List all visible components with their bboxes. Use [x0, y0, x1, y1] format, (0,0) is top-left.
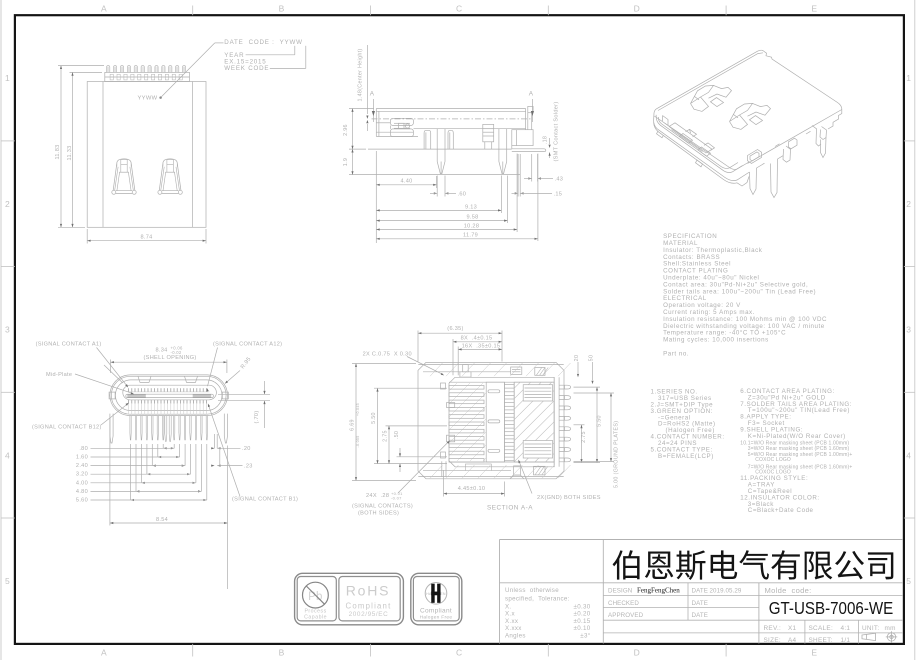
- svg-text:2.40: 2.40: [76, 463, 88, 469]
- svg-text:5: 5: [5, 576, 10, 586]
- svg-text:E: E: [811, 4, 817, 14]
- svg-text:4.00: 4.00: [76, 480, 88, 486]
- svg-text:.23: .23: [244, 464, 253, 470]
- svg-text:C=Black+Date Code: C=Black+Date Code: [748, 507, 814, 514]
- svg-text:COXOC LOGO: COXOC LOGO: [755, 457, 791, 463]
- svg-text:Capable: Capable: [304, 615, 327, 621]
- svg-text:4: 4: [5, 450, 10, 460]
- svg-text:D: D: [634, 4, 640, 14]
- svg-text:8.74: 8.74: [140, 235, 152, 241]
- svg-text:8.34: 8.34: [156, 348, 168, 354]
- svg-text:5.60: 5.60: [76, 498, 88, 504]
- svg-text:4:1: 4:1: [841, 625, 851, 632]
- svg-text:(.70): (.70): [254, 410, 260, 423]
- svg-text:1.48(Center Height): 1.48(Center Height): [358, 48, 364, 101]
- svg-text:50: 50: [589, 355, 595, 362]
- svg-text:(SIGNAL CONTACT A12): (SIGNAL CONTACT A12): [213, 342, 282, 348]
- svg-text:A: A: [529, 91, 534, 98]
- svg-text:Molde code:: Molde code:: [765, 586, 812, 595]
- svg-text:(SIGNAL CONTACT B1): (SIGNAL CONTACT B1): [232, 497, 298, 503]
- svg-text:2X(GND) BOTH SIDES: 2X(GND) BOTH SIDES: [537, 495, 601, 501]
- svg-text:X.: X.: [505, 603, 511, 610]
- svg-text:1.9: 1.9: [343, 158, 349, 166]
- svg-text:.43: .43: [555, 177, 564, 183]
- svg-text:DATE: DATE: [692, 588, 708, 595]
- svg-text:11.83: 11.83: [55, 144, 61, 159]
- svg-text:4: 4: [906, 450, 911, 460]
- svg-text:FengFengChen: FengFengChen: [637, 587, 680, 595]
- svg-text:4.40: 4.40: [400, 179, 412, 185]
- svg-text:DESIGN: DESIGN: [608, 588, 632, 595]
- svg-text:2.96: 2.96: [343, 124, 349, 136]
- svg-text:mm: mm: [885, 625, 896, 632]
- svg-text:C: C: [456, 4, 462, 14]
- svg-text:(SIGNAL CONTACT A1): (SIGNAL CONTACT A1): [36, 342, 102, 348]
- svg-text:±0.30: ±0.30: [574, 603, 591, 610]
- svg-text:4.80: 4.80: [76, 489, 88, 495]
- svg-text:11.79: 11.79: [463, 233, 478, 239]
- svg-text:WEEK CODE: WEEK CODE: [224, 65, 269, 72]
- svg-text:11.33: 11.33: [67, 145, 73, 160]
- svg-text:3.20: 3.20: [76, 472, 88, 478]
- svg-text:DATE CODE : YYWW: DATE CODE : YYWW: [224, 39, 302, 46]
- svg-text:8.54: 8.54: [156, 517, 168, 523]
- svg-text:8X .4±0.15: 8X .4±0.15: [461, 336, 493, 342]
- svg-text:Process: Process: [304, 609, 326, 615]
- svg-text:(SHELL OPENING): (SHELL OPENING): [144, 355, 197, 361]
- svg-text:1: 1: [906, 73, 911, 83]
- svg-text:1: 1: [5, 73, 10, 83]
- svg-text:±0.20: ±0.20: [574, 611, 591, 618]
- svg-text:SECTION A-A: SECTION A-A: [487, 505, 533, 512]
- svg-text:Mid-Plate: Mid-Plate: [46, 372, 72, 378]
- svg-text:4.45±0.10: 4.45±0.10: [458, 486, 486, 492]
- svg-text:.80: .80: [79, 446, 88, 452]
- svg-text:(SMT Contact Solder): (SMT Contact Solder): [554, 102, 560, 162]
- svg-text:Halogen Free: Halogen Free: [420, 615, 453, 621]
- svg-text:2: 2: [5, 199, 10, 209]
- svg-text:X.xx: X.xx: [505, 618, 519, 625]
- svg-text:UNIT:: UNIT:: [862, 625, 879, 632]
- svg-text:-0.055: -0.055: [356, 436, 360, 448]
- svg-text:DATE: DATE: [692, 612, 708, 619]
- svg-text:Part no.: Part no.: [663, 350, 689, 357]
- svg-text:REV.:: REV.:: [764, 625, 782, 632]
- svg-text:A: A: [101, 4, 107, 14]
- svg-text:9.58: 9.58: [466, 215, 478, 221]
- svg-text:.18: .18: [543, 136, 549, 144]
- svg-text:.20: .20: [242, 446, 251, 452]
- svg-text:.50: .50: [394, 431, 400, 439]
- svg-text:A4: A4: [788, 637, 797, 644]
- svg-text:10.28: 10.28: [464, 223, 480, 229]
- svg-text:X1: X1: [788, 625, 797, 632]
- svg-text:20: 20: [574, 355, 580, 362]
- svg-text:X.x: X.x: [505, 611, 515, 618]
- svg-text:24X .28: 24X .28: [366, 493, 389, 499]
- svg-text:5.50: 5.50: [597, 415, 603, 427]
- svg-text:Unless otherwise: Unless otherwise: [505, 587, 559, 594]
- svg-text:B: B: [279, 4, 285, 14]
- svg-text:Angles: Angles: [505, 632, 526, 639]
- svg-text:+0.045: +0.045: [356, 403, 360, 416]
- svg-text:D: D: [634, 648, 640, 658]
- svg-text:R.95: R.95: [240, 356, 253, 370]
- svg-text:SCALE:: SCALE:: [809, 625, 834, 632]
- svg-text:K=Ni-Plated(W/O Rear Cover): K=Ni-Plated(W/O Rear Cover): [748, 433, 846, 440]
- svg-text:2: 2: [906, 199, 911, 209]
- svg-text:±0.10: ±0.10: [574, 625, 591, 632]
- svg-text:1.60: 1.60: [76, 455, 88, 461]
- svg-text:GT-USB-7006-WE: GT-USB-7006-WE: [769, 598, 894, 618]
- svg-text:3: 3: [906, 325, 911, 335]
- svg-text:±0.15: ±0.15: [574, 618, 591, 625]
- svg-text:SIZE:: SIZE:: [764, 637, 781, 644]
- svg-text:YYWW: YYWW: [138, 95, 158, 101]
- svg-text:.15: .15: [554, 192, 563, 198]
- svg-text:5: 5: [906, 576, 911, 586]
- svg-text:2002/95/EC: 2002/95/EC: [349, 611, 389, 618]
- svg-text:A: A: [101, 648, 107, 658]
- svg-text:Compliant: Compliant: [346, 601, 392, 610]
- svg-text:Compliant: Compliant: [420, 608, 452, 615]
- svg-text:-0.07: -0.07: [391, 495, 402, 500]
- svg-text:2.75: 2.75: [383, 430, 389, 442]
- svg-text:B=FEMALE(LCP): B=FEMALE(LCP): [658, 453, 714, 460]
- svg-text:5.00 (GROUND PLATES): 5.00 (GROUND PLATES): [614, 421, 620, 488]
- svg-text:CHECKED: CHECKED: [608, 600, 639, 607]
- svg-text:specified, Tolerance:: specified, Tolerance:: [505, 596, 570, 603]
- svg-text:.60: .60: [458, 192, 467, 198]
- svg-text:2.75: 2.75: [581, 431, 587, 443]
- svg-text:(BOTH SIDES): (BOTH SIDES): [358, 511, 399, 517]
- svg-text:C: C: [456, 648, 462, 658]
- svg-text:9.13: 9.13: [465, 204, 477, 210]
- svg-text:2X C.0.75 X 0.30: 2X C.0.75 X 0.30: [363, 351, 412, 357]
- svg-text:RoHS: RoHS: [346, 582, 391, 598]
- svg-text:APPROVED: APPROVED: [608, 612, 644, 619]
- svg-text:Mating cycles: 10,000 insertio: Mating cycles: 10,000 insertions: [663, 337, 769, 344]
- svg-text:X.xxx: X.xxx: [505, 625, 522, 632]
- svg-text:(SIGNAL CONTACTS): (SIGNAL CONTACTS): [352, 504, 413, 510]
- svg-text:(SIGNAL CONTACT B12): (SIGNAL CONTACT B12): [32, 425, 102, 431]
- svg-text:A: A: [370, 91, 375, 98]
- svg-text:5.50: 5.50: [371, 412, 377, 424]
- svg-text:B: B: [279, 648, 285, 658]
- svg-text:(6.35): (6.35): [447, 326, 463, 332]
- svg-text:16X .35±0.15: 16X .35±0.15: [462, 343, 501, 349]
- svg-text:DATE: DATE: [692, 600, 708, 607]
- svg-text:E: E: [811, 648, 817, 658]
- svg-text:2019.05.29: 2019.05.29: [710, 588, 742, 595]
- svg-text:3: 3: [5, 325, 10, 335]
- svg-text:1/1: 1/1: [841, 637, 851, 644]
- svg-text:SHEET:: SHEET:: [809, 637, 833, 644]
- svg-text:6.69: 6.69: [350, 419, 356, 431]
- svg-text:±3°: ±3°: [580, 632, 590, 639]
